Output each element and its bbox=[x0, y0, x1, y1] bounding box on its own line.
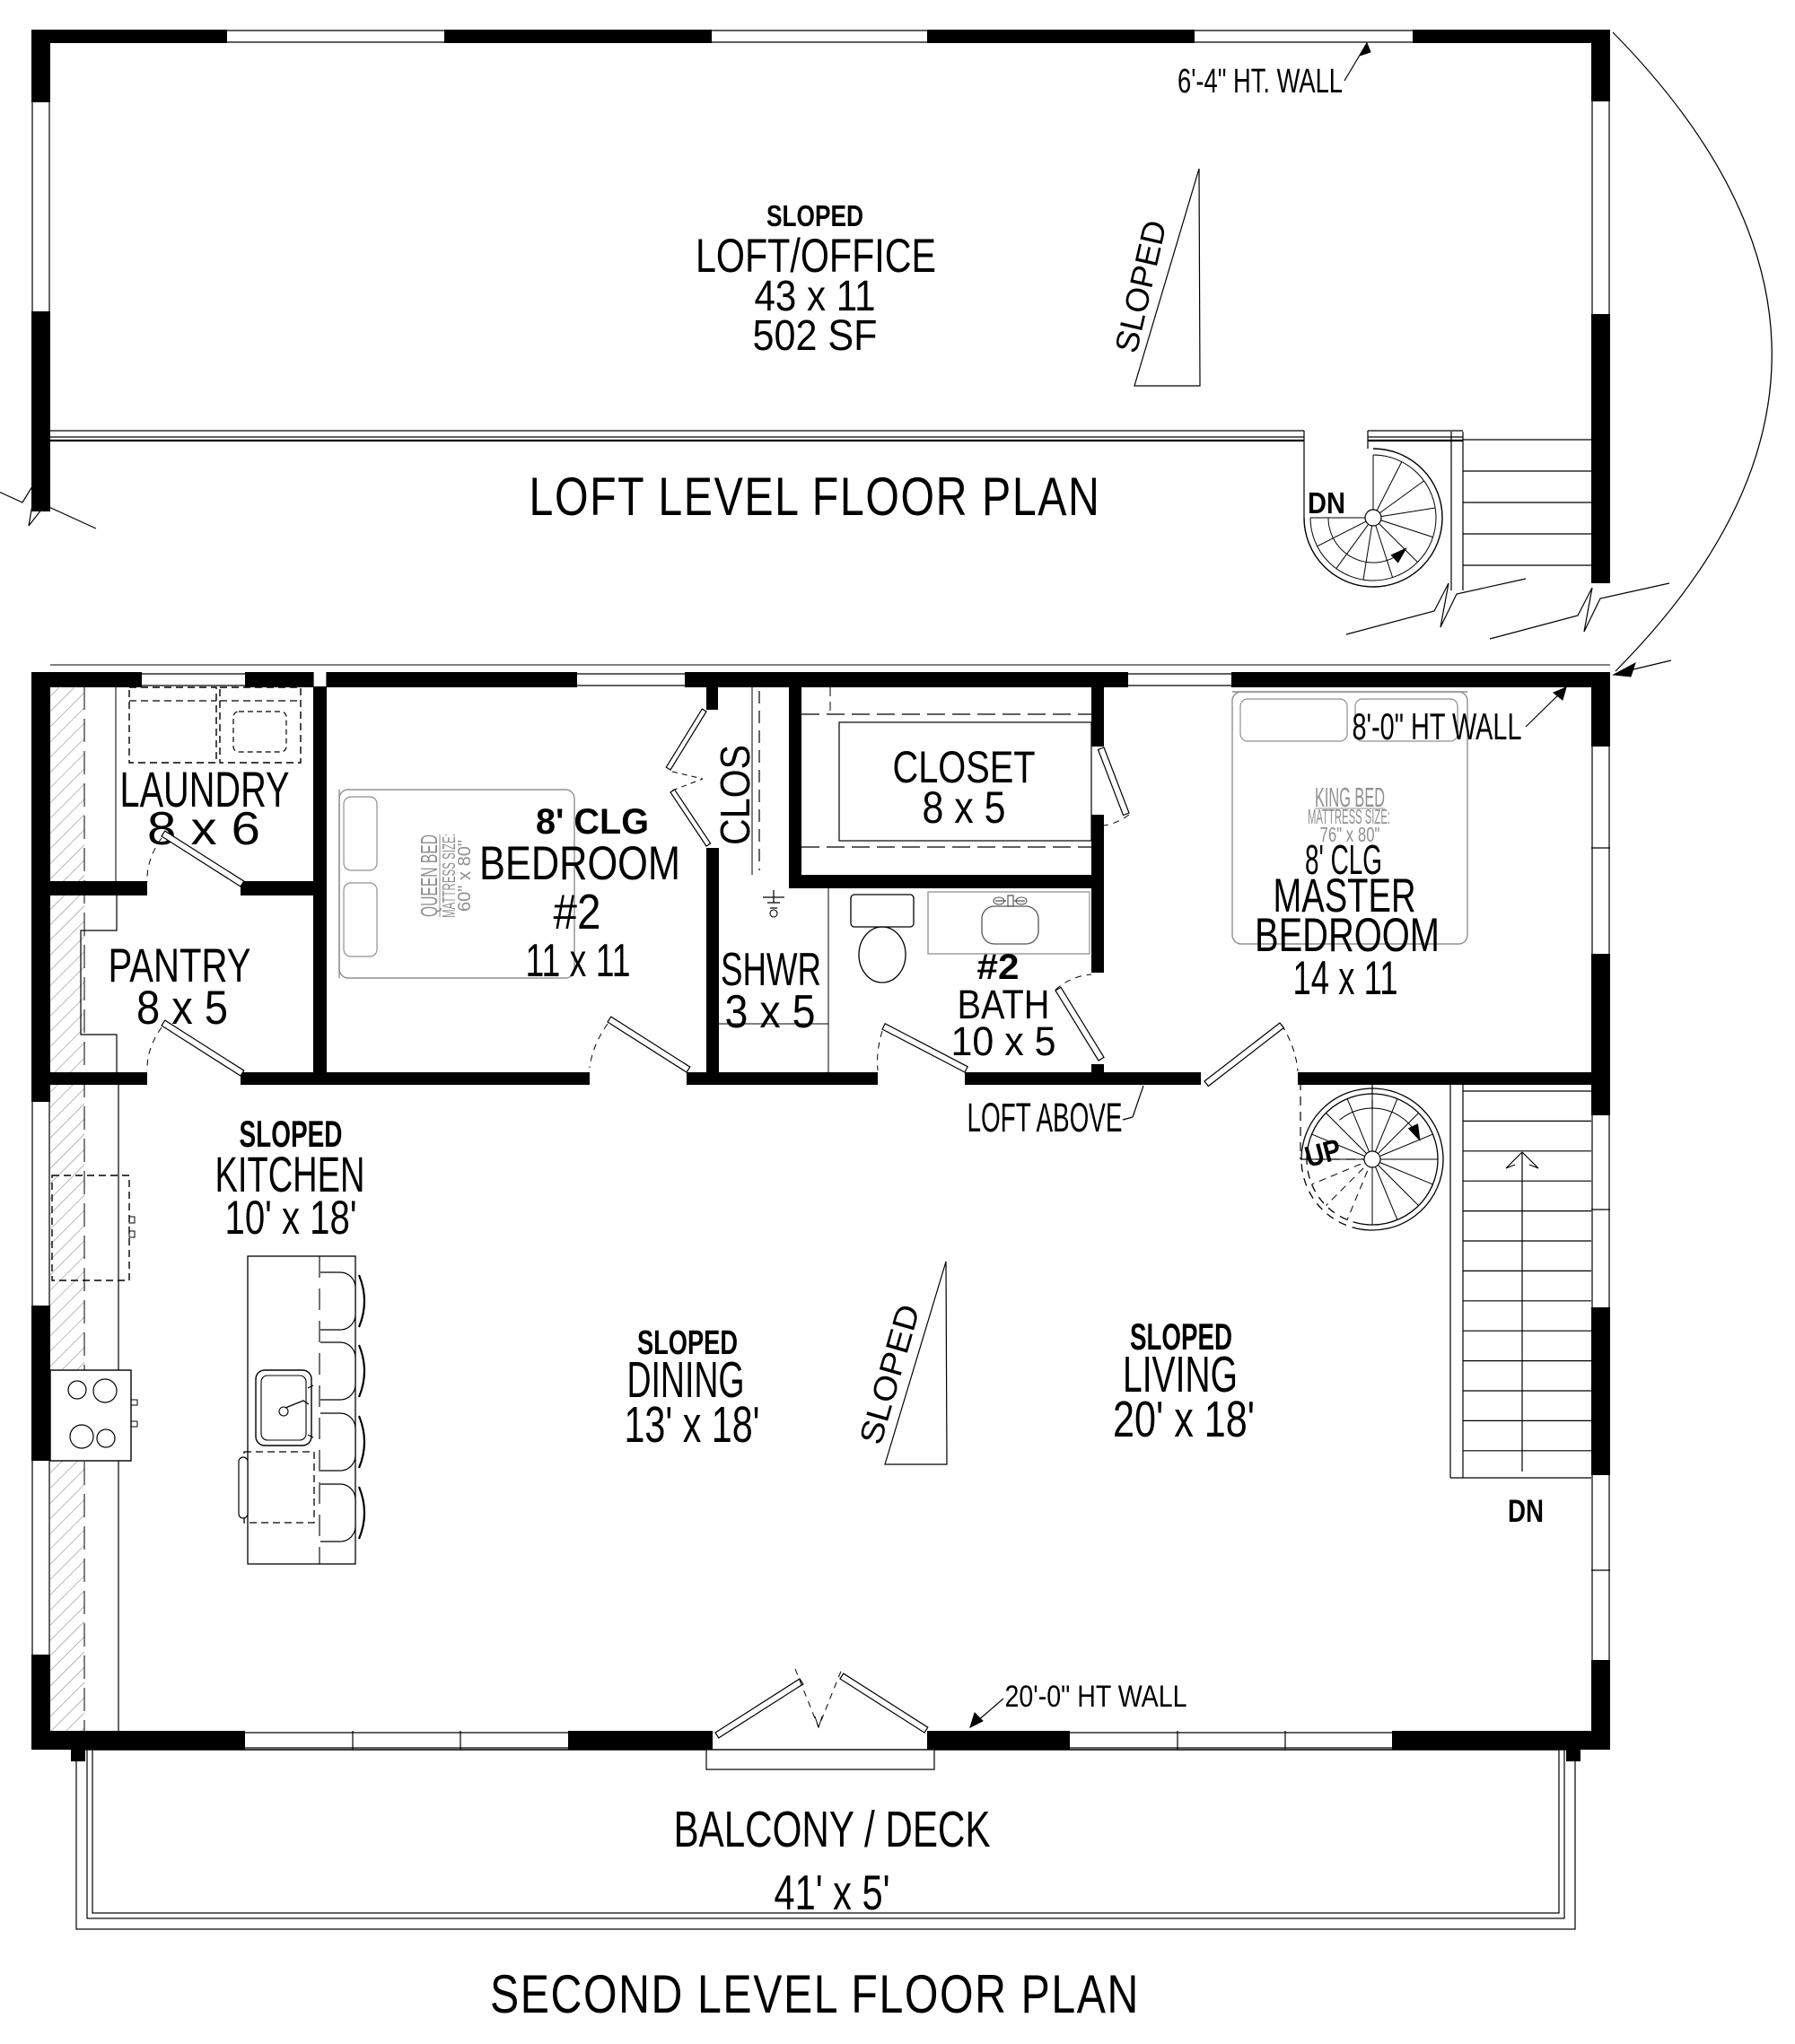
svg-text:DN: DN bbox=[1508, 1494, 1544, 1529]
svg-text:#2: #2 bbox=[554, 884, 601, 939]
svg-text:20'-0" HT WALL: 20'-0" HT WALL bbox=[1005, 1680, 1187, 1714]
svg-text:BEDROOM: BEDROOM bbox=[479, 837, 680, 890]
svg-text:8' CLG: 8' CLG bbox=[536, 802, 649, 842]
svg-text:LOFT ABOVE: LOFT ABOVE bbox=[968, 1095, 1123, 1140]
svg-text:3 x 5: 3 x 5 bbox=[725, 986, 816, 1038]
svg-text:10' x 18': 10' x 18' bbox=[225, 1192, 357, 1245]
svg-text:11 x 11: 11 x 11 bbox=[526, 935, 631, 987]
svg-text:8 x 5: 8 x 5 bbox=[136, 982, 228, 1035]
svg-text:BALCONY / DECK: BALCONY / DECK bbox=[674, 1801, 991, 1858]
svg-text:10 x 5: 10 x 5 bbox=[951, 1018, 1056, 1064]
svg-text:QUEEN BED: QUEEN BED bbox=[416, 834, 442, 917]
svg-text:13' x 18': 13' x 18' bbox=[625, 1396, 760, 1454]
svg-text:DN: DN bbox=[1308, 486, 1345, 520]
svg-text:60" x 80": 60" x 80" bbox=[455, 840, 475, 912]
svg-text:20' x 18': 20' x 18' bbox=[1113, 1391, 1255, 1448]
svg-text:502 SF: 502 SF bbox=[753, 312, 878, 360]
svg-text:8 x 5: 8 x 5 bbox=[923, 782, 1006, 833]
svg-text:CLOS: CLOS bbox=[712, 745, 758, 845]
svg-text:6'-4" HT. WALL: 6'-4" HT. WALL bbox=[1178, 63, 1343, 100]
svg-text:14 x 11: 14 x 11 bbox=[1293, 952, 1398, 1005]
svg-text:LOFT LEVEL FLOOR PLAN: LOFT LEVEL FLOOR PLAN bbox=[530, 467, 1101, 527]
svg-text:8 x 6: 8 x 6 bbox=[147, 803, 260, 855]
svg-text:41' x 5': 41' x 5' bbox=[775, 1865, 890, 1920]
svg-text:SECOND LEVEL FLOOR PLAN: SECOND LEVEL FLOOR PLAN bbox=[490, 1964, 1140, 2024]
svg-text:8'-0" HT WALL: 8'-0" HT WALL bbox=[1353, 705, 1522, 747]
svg-text:SLOPED: SLOPED bbox=[766, 199, 863, 232]
